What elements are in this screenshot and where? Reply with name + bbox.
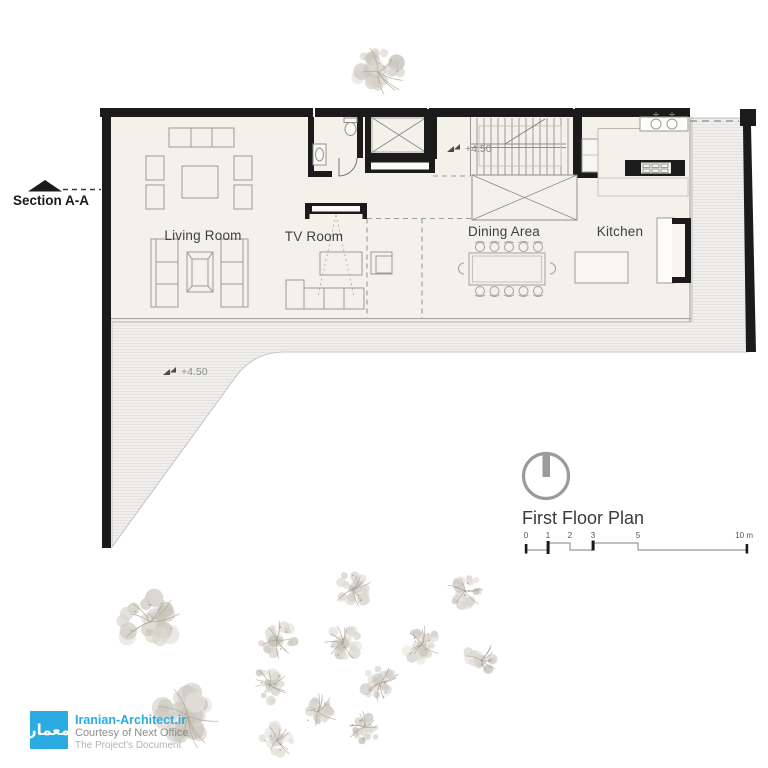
tree-icon xyxy=(258,621,298,659)
side-counter xyxy=(657,218,674,283)
toilet-icon xyxy=(345,123,356,136)
scale-tick: 0 xyxy=(524,531,529,540)
pantry-cabinet xyxy=(582,139,598,172)
tree-icon xyxy=(325,626,363,660)
section-arrow-icon xyxy=(28,180,62,192)
level-value: +4.50 xyxy=(181,366,208,378)
tree-icon xyxy=(336,572,371,607)
scale-tick: 1 xyxy=(546,531,551,540)
scale-tick: 5 xyxy=(636,531,641,540)
toilet-tank xyxy=(344,118,357,123)
label-dining-area: Dining Area xyxy=(468,224,540,239)
iranian-architect-logo[interactable]: معمار xyxy=(30,711,68,749)
watermark: معمار Iranian-Architect.ir Courtesy of N… xyxy=(30,711,189,752)
wall-top-right-corner xyxy=(740,109,756,126)
tree-icon xyxy=(360,666,399,702)
tree-icon xyxy=(117,589,180,646)
tree-icon xyxy=(402,626,439,665)
scale-end-label: 10 m xyxy=(735,531,753,540)
label-living-room: Living Room xyxy=(164,228,241,243)
title-block: First Floor Plan 0 1 2 3 5 10 m xyxy=(522,454,753,555)
kitchen-island xyxy=(575,252,628,283)
watermark-document: The Project's Document xyxy=(75,740,189,752)
wall-left xyxy=(102,108,111,548)
tree-icon xyxy=(350,711,379,744)
section-label: Section A-A xyxy=(13,193,89,208)
tree-icon xyxy=(464,645,498,674)
sink-basin-icon xyxy=(316,148,324,161)
tree-icon xyxy=(351,48,405,95)
watermark-site-link[interactable]: Iranian-Architect.ir xyxy=(75,713,189,727)
tree-icon xyxy=(259,721,295,758)
floor-plan-page: +4.50 +4.50 Living Room TV Room Dining A… xyxy=(0,0,768,768)
tv-screen xyxy=(312,206,360,212)
tree-icon xyxy=(256,669,287,706)
label-kitchen: Kitchen xyxy=(597,224,643,239)
floor-plan-drawing: +4.50 +4.50 Living Room TV Room Dining A… xyxy=(0,0,768,768)
drawing-title: First Floor Plan xyxy=(522,508,644,528)
tree-icon xyxy=(448,575,483,610)
kitchen-sink-counter xyxy=(640,117,688,131)
scale-tick: 3 xyxy=(591,531,596,540)
scale-bar: 0 1 2 3 5 10 m xyxy=(524,531,754,554)
section-marker: Section A-A xyxy=(13,180,101,208)
level-value: +4.50 xyxy=(465,143,492,155)
scale-tick: 2 xyxy=(568,531,573,540)
elevator xyxy=(365,109,437,173)
tree-icon xyxy=(305,693,336,726)
watermark-courtesy: Courtesy of Next Office xyxy=(75,727,189,740)
label-tv-room: TV Room xyxy=(285,229,343,244)
